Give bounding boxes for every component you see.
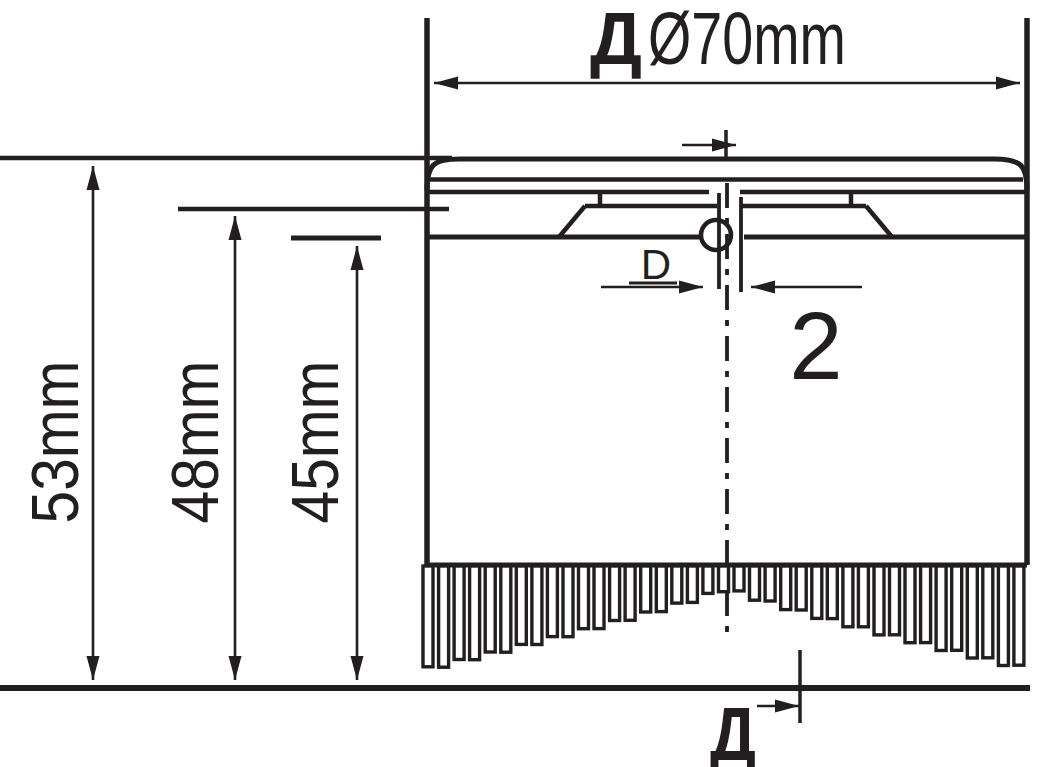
bristle bbox=[579, 566, 589, 629]
bristle bbox=[454, 566, 464, 660]
bristles bbox=[423, 566, 1024, 667]
bristle bbox=[641, 566, 651, 612]
bristle bbox=[796, 566, 806, 610]
bristle bbox=[547, 566, 557, 637]
technical-drawing: Д Ø70mm 53mm 48mm 45mm D 2 Д bbox=[0, 0, 1038, 767]
bristle bbox=[921, 566, 931, 643]
dim-label-48: 48mm bbox=[158, 361, 232, 524]
bristle bbox=[656, 566, 666, 612]
diameter-label-value: Ø70mm bbox=[648, 0, 846, 80]
bottom-reference: Д bbox=[710, 650, 800, 767]
bristle bbox=[998, 566, 1008, 666]
dimension-45mm: 45mm bbox=[278, 246, 357, 680]
dim-label-45: 45mm bbox=[278, 361, 352, 524]
bristle bbox=[423, 566, 433, 667]
bristle bbox=[532, 566, 542, 645]
dimension-53mm: 53mm bbox=[18, 166, 93, 680]
dimension-diameter: Д Ø70mm bbox=[434, 0, 1020, 83]
bristle bbox=[501, 566, 511, 652]
bristle bbox=[874, 566, 884, 635]
bristle bbox=[439, 566, 449, 667]
bristle bbox=[858, 566, 868, 627]
detail-callout: 2 bbox=[789, 292, 842, 399]
bottom-ref-label: Д bbox=[710, 691, 756, 767]
bristle bbox=[703, 566, 713, 593]
bristle bbox=[719, 566, 729, 592]
bristle bbox=[765, 566, 775, 601]
bristle bbox=[594, 566, 604, 629]
bristle bbox=[672, 566, 682, 603]
bristle bbox=[734, 566, 744, 591]
bristle bbox=[952, 566, 962, 650]
bristle bbox=[470, 566, 480, 660]
bristle bbox=[625, 566, 635, 620]
plate-slope-right bbox=[866, 206, 892, 237]
bristle bbox=[843, 566, 853, 627]
slot-label: D bbox=[641, 241, 671, 288]
bristle bbox=[967, 566, 977, 658]
bristle bbox=[905, 566, 915, 643]
bristle bbox=[890, 566, 900, 635]
bristle bbox=[1014, 566, 1024, 665]
bristle bbox=[516, 566, 526, 644]
bristle bbox=[610, 566, 620, 621]
plate-slope-left bbox=[559, 206, 585, 237]
bristle bbox=[936, 566, 946, 651]
bristle bbox=[827, 566, 837, 619]
bristle bbox=[563, 566, 573, 637]
dimension-slot-d: D bbox=[601, 241, 862, 288]
dimension-48mm: 48mm bbox=[158, 216, 235, 680]
dim-label-53: 53mm bbox=[18, 361, 92, 524]
bristle bbox=[687, 566, 697, 602]
diameter-label-prefix: Д bbox=[590, 0, 642, 80]
bristle bbox=[983, 566, 993, 658]
drawing-sheet: Д Ø70mm 53mm 48mm 45mm D 2 Д bbox=[0, 0, 1038, 767]
bristle bbox=[781, 566, 791, 610]
bristle bbox=[812, 566, 822, 618]
bristle bbox=[485, 566, 495, 652]
bristle bbox=[750, 566, 760, 600]
